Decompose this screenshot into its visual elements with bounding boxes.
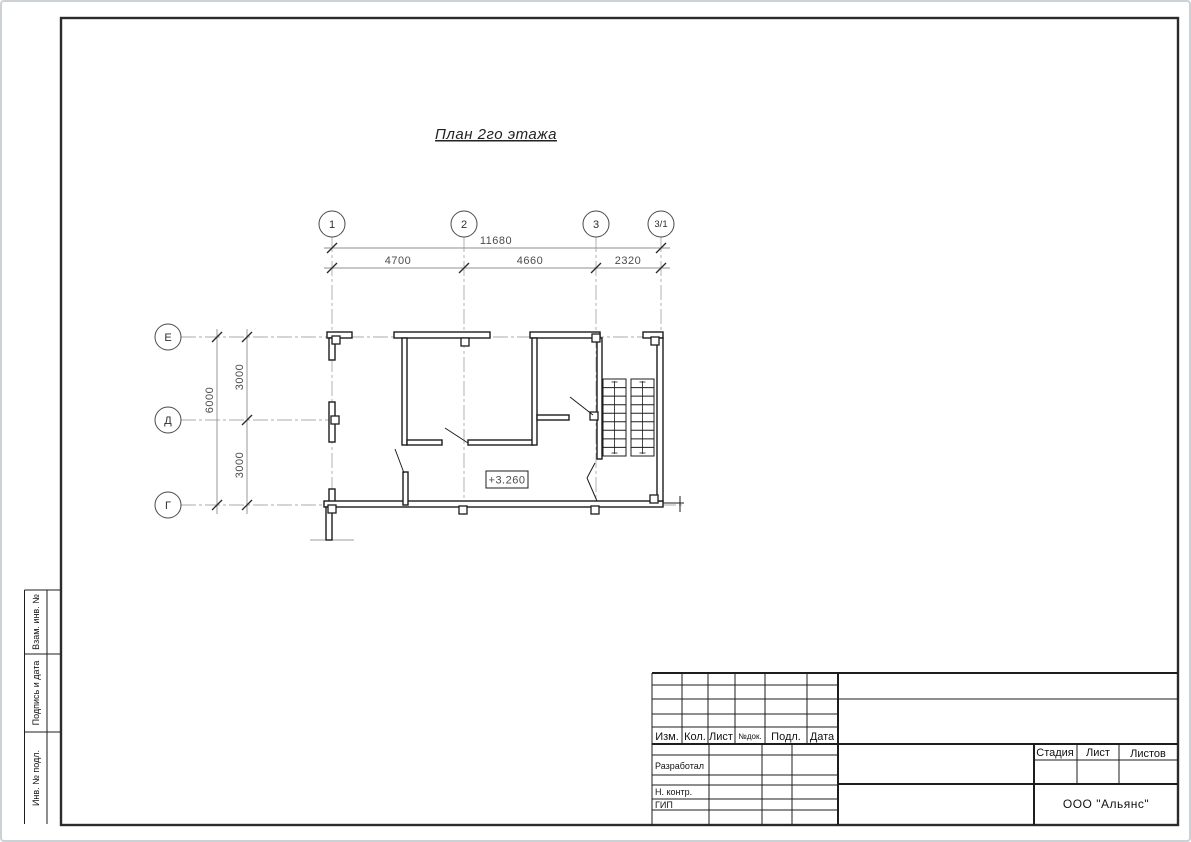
axis-label-1: 1: [329, 219, 335, 231]
elevation-mark: +3.260: [486, 471, 528, 488]
tb-role-developed: Разработал: [655, 761, 704, 771]
drawing-sheet: План 2го этажа 11680 4700 4660 2320 60: [0, 0, 1191, 842]
tb-sheet: Лист: [1086, 747, 1110, 759]
axis-label-E: Е: [164, 332, 171, 344]
tb-role-ncontrol: Н. контр.: [655, 787, 692, 797]
title-block: Изм. Кол. Лист №док. Подл. Дата Разработ…: [652, 673, 1178, 825]
drawing-canvas: План 2го этажа 11680 4700 4660 2320 60: [2, 2, 1191, 842]
dim-vspan-2: 3000: [234, 452, 246, 478]
dimension-lines-top: 11680 4700 4660 2320: [324, 235, 670, 273]
axis-label-3: 3: [593, 219, 599, 231]
axis-label-D: Д: [164, 415, 172, 427]
axis-label-2: 2: [461, 219, 467, 231]
strip-label-vzam: Взам. инв. №: [31, 594, 41, 650]
tb-col-kol: Кол.: [684, 731, 706, 743]
tb-col-podp: Подл.: [771, 731, 801, 743]
walls: [324, 332, 684, 540]
dim-span-2: 4660: [517, 255, 543, 267]
dim-vspan-1: 3000: [234, 364, 246, 390]
axis-label-3-1: 3/1: [654, 219, 667, 230]
tb-company: ООО "Альянс": [1063, 797, 1149, 811]
tb-col-data: Дата: [810, 731, 835, 743]
axis-label-G: Г: [165, 500, 171, 512]
tb-stage: Стадия: [1036, 747, 1074, 759]
dimension-lines-left: 6000 3000 3000: [204, 329, 252, 514]
dim-total-width: 11680: [480, 235, 512, 247]
staircase: [603, 379, 654, 456]
strip-label-podpis: Подпись и дата: [31, 661, 41, 726]
tb-role-gip: ГИП: [655, 800, 673, 810]
tb-col-ndok: №док.: [738, 732, 761, 741]
strip-label-inv: Инв. № подл.: [31, 750, 41, 806]
tb-col-izm: Изм.: [655, 731, 679, 743]
elevation-value: +3.260: [489, 475, 526, 487]
tb-sheets: Листов: [1130, 748, 1166, 760]
dim-total-height: 6000: [204, 387, 216, 413]
page-title: План 2го этажа: [435, 126, 557, 143]
tb-col-list: Лист: [709, 731, 733, 743]
dim-span-1: 4700: [385, 255, 411, 267]
side-strips: Взам. инв. № Подпись и дата Инв. № подл.: [25, 590, 61, 824]
dim-span-3: 2320: [615, 255, 641, 267]
